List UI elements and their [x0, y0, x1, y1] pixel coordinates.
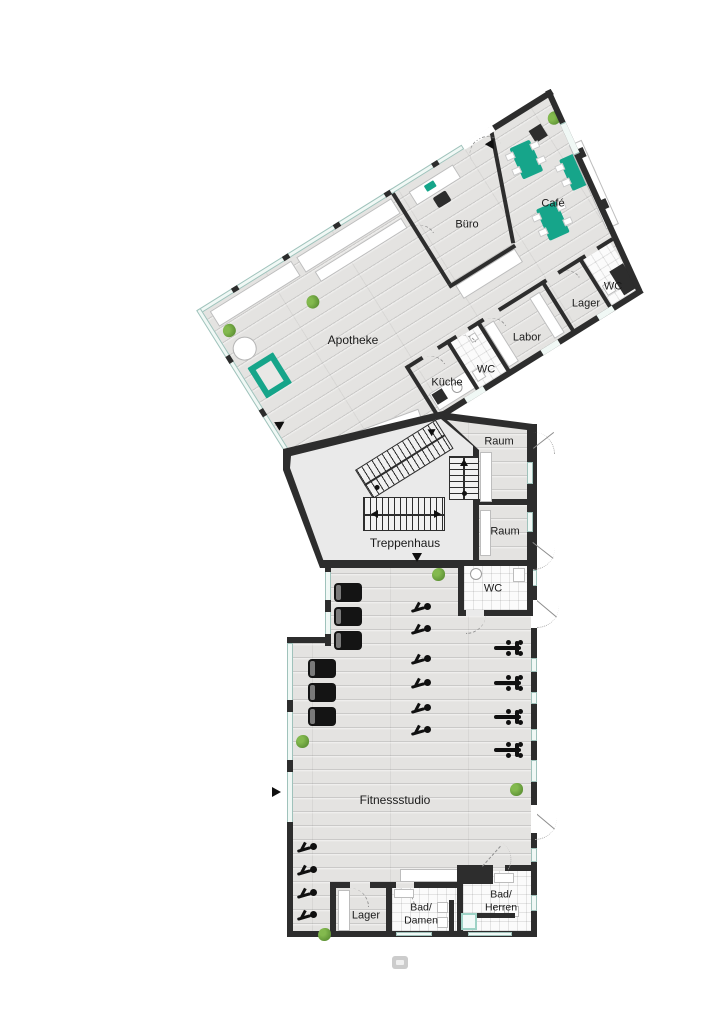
- damen-sink: [394, 889, 414, 898]
- treadmill-icon: [308, 659, 336, 678]
- locker-bench: [400, 869, 464, 882]
- mullion: [287, 700, 293, 712]
- room-label-apotheke: Apotheke: [328, 333, 379, 347]
- exercise-bike-icon: [410, 677, 434, 692]
- room-label-wc-kueche: WC: [477, 363, 495, 376]
- herren-wall-block: [463, 865, 493, 884]
- fitness-wall-north: [322, 560, 462, 566]
- plant-icon: [296, 735, 309, 748]
- stair-arrow-icon: [412, 553, 422, 562]
- exterior-door-arc: [535, 818, 557, 840]
- window: [531, 692, 537, 704]
- treadmill-icon: [334, 583, 362, 602]
- mullion: [325, 634, 331, 646]
- damen-wall-top: [414, 882, 463, 888]
- lager-wall-west: [330, 882, 336, 937]
- mullion: [325, 600, 331, 612]
- exercise-bike-icon: [296, 864, 320, 879]
- plant-icon: [432, 568, 445, 581]
- exercise-bike-icon: [410, 623, 434, 638]
- treadmill-icon: [308, 707, 336, 726]
- stairs-lower: [363, 497, 445, 531]
- exterior-door-arc: [533, 432, 555, 454]
- damen-toilet: [437, 902, 448, 913]
- stairs-vertical: [449, 456, 479, 500]
- room-label-wc-fitness: WC: [484, 582, 502, 595]
- room-label-treppenhaus: Treppenhaus: [370, 536, 440, 550]
- weight-bench-icon: [494, 742, 524, 758]
- herren-shower: [461, 913, 477, 930]
- exercise-bike-icon: [410, 653, 434, 668]
- fitness-wall-west-lower: [287, 822, 293, 937]
- window: [468, 932, 512, 936]
- window: [531, 658, 537, 672]
- mullion: [287, 760, 293, 772]
- exercise-bike-icon: [410, 724, 434, 739]
- mullion: [325, 560, 331, 572]
- plant-icon: [318, 928, 331, 941]
- room-label-bad-damen: Bad/ Damen: [404, 901, 438, 926]
- herren-sink: [494, 873, 514, 883]
- treadmill-icon: [308, 683, 336, 702]
- fitness-glass-west-lower: [287, 643, 293, 825]
- exercise-bike-icon: [410, 601, 434, 616]
- room-label-lager-wing: Lager: [572, 297, 600, 310]
- weight-bench-icon: [494, 709, 524, 725]
- window: [531, 848, 537, 862]
- room-label-raum-upper: Raum: [484, 435, 513, 448]
- weight-bench-icon: [494, 675, 524, 691]
- lager-cabinet: [338, 890, 350, 931]
- exterior-door-arc: [533, 548, 555, 570]
- entrance-arrow-icon: [272, 787, 281, 797]
- exercise-bike-icon: [296, 887, 320, 902]
- window: [531, 729, 537, 741]
- herren-divider: [477, 913, 515, 918]
- room-label-lager-fitness: Lager: [352, 909, 380, 922]
- floor-plan-canvas: Apotheke Büro Café WC Lager Labor Küche …: [0, 0, 724, 1024]
- window: [527, 512, 533, 532]
- room-label-fitnessstudio: Fitnessstudio: [360, 793, 431, 807]
- exercise-bike-icon: [296, 909, 320, 924]
- room-label-labor: Labor: [513, 331, 541, 344]
- damen-toilet: [437, 917, 448, 928]
- raum-cabinet: [480, 452, 492, 502]
- damen-stub-wall: [449, 900, 454, 931]
- exterior-door-arc: [537, 606, 559, 628]
- weight-bench-icon: [494, 640, 524, 656]
- plant-icon: [510, 783, 523, 796]
- window: [396, 932, 432, 936]
- exercise-bike-icon: [296, 841, 320, 856]
- wall-lager-damen: [386, 882, 392, 937]
- room-label-cafe: Café: [541, 197, 564, 210]
- wc-fitness-sink: [470, 568, 482, 580]
- room-label-wc-wing: WC: [604, 280, 622, 293]
- room-label-bad-herren: Bad/ Herren: [485, 888, 517, 913]
- room-label-raum-lower: Raum: [490, 525, 519, 538]
- window: [527, 462, 533, 484]
- watermark-icon: [392, 956, 408, 969]
- room-label-kueche: Küche: [431, 376, 462, 389]
- exercise-bike-icon: [410, 702, 434, 717]
- door-gap: [531, 805, 537, 833]
- room-label-buero: Büro: [455, 218, 478, 231]
- treadmill-icon: [334, 607, 362, 626]
- window: [531, 760, 537, 782]
- wc-fitness-toilet: [513, 568, 525, 582]
- treadmill-icon: [334, 631, 362, 650]
- window: [531, 895, 537, 911]
- lager-wall-top: [330, 882, 350, 888]
